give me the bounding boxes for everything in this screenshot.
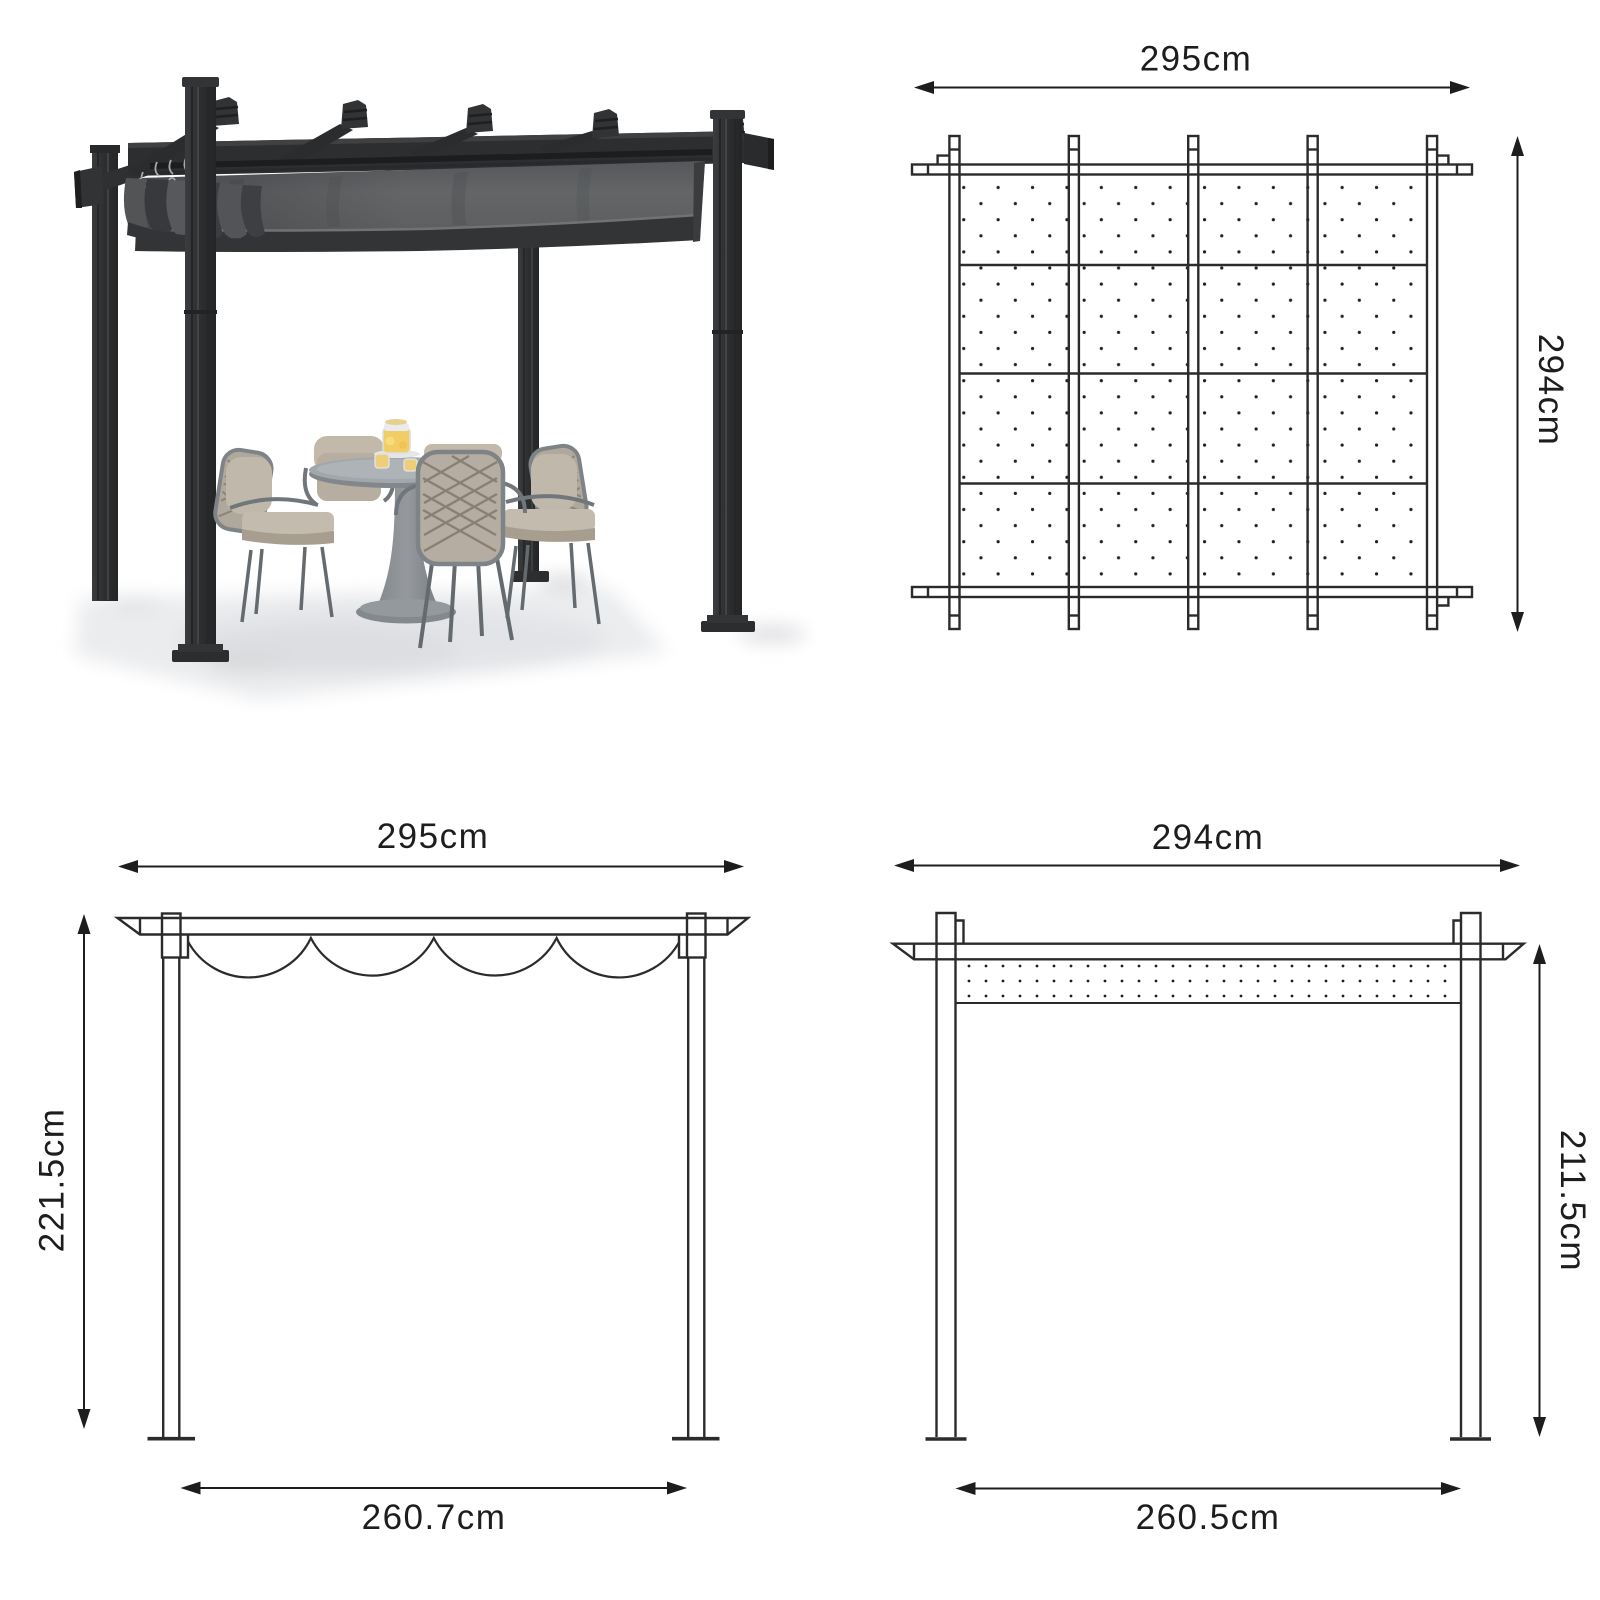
svg-text:211.5cm: 211.5cm — [1553, 1130, 1592, 1272]
svg-text:294cm: 294cm — [1531, 334, 1570, 447]
svg-text:295cm: 295cm — [377, 817, 490, 856]
svg-text:294cm: 294cm — [1152, 818, 1265, 857]
svg-text:295cm: 295cm — [1140, 40, 1253, 79]
svg-text:260.5cm: 260.5cm — [1136, 1498, 1281, 1537]
svg-text:221.5cm: 221.5cm — [32, 1108, 71, 1253]
svg-text:260.7cm: 260.7cm — [362, 1498, 507, 1537]
